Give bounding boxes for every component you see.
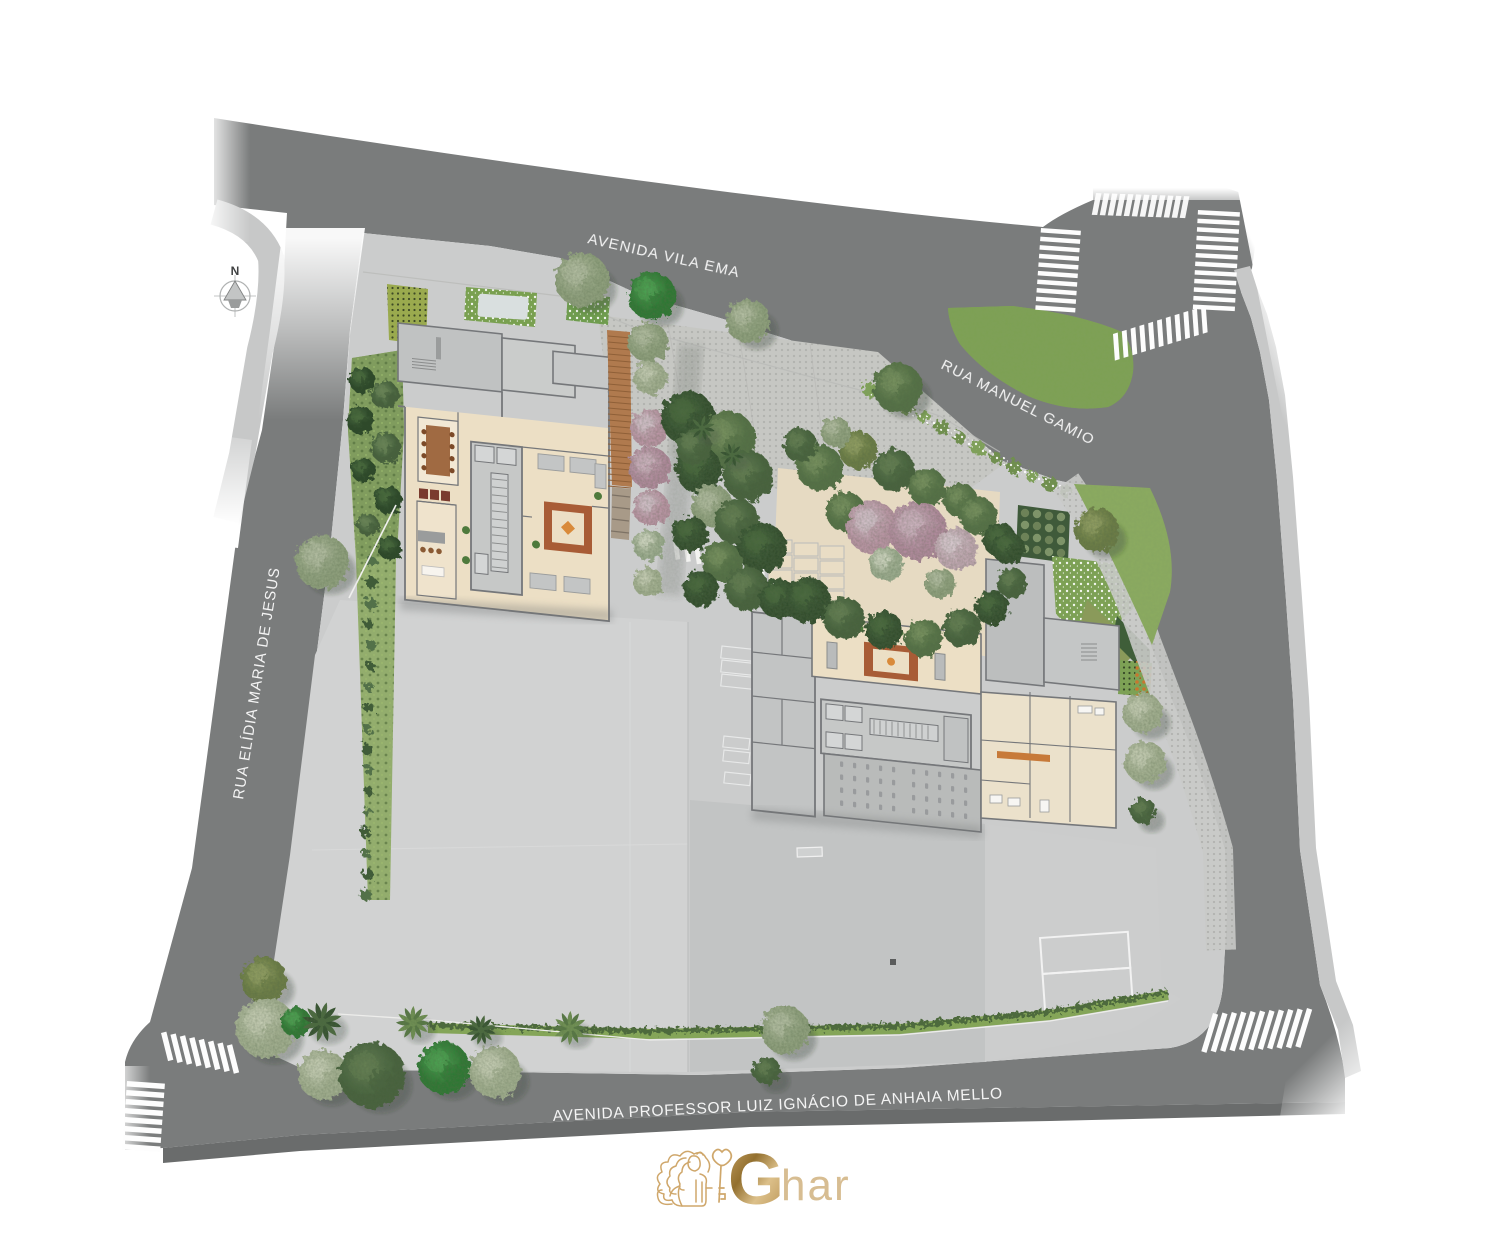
svg-text:G: G: [728, 1140, 784, 1220]
svg-text:har: har: [781, 1161, 851, 1210]
